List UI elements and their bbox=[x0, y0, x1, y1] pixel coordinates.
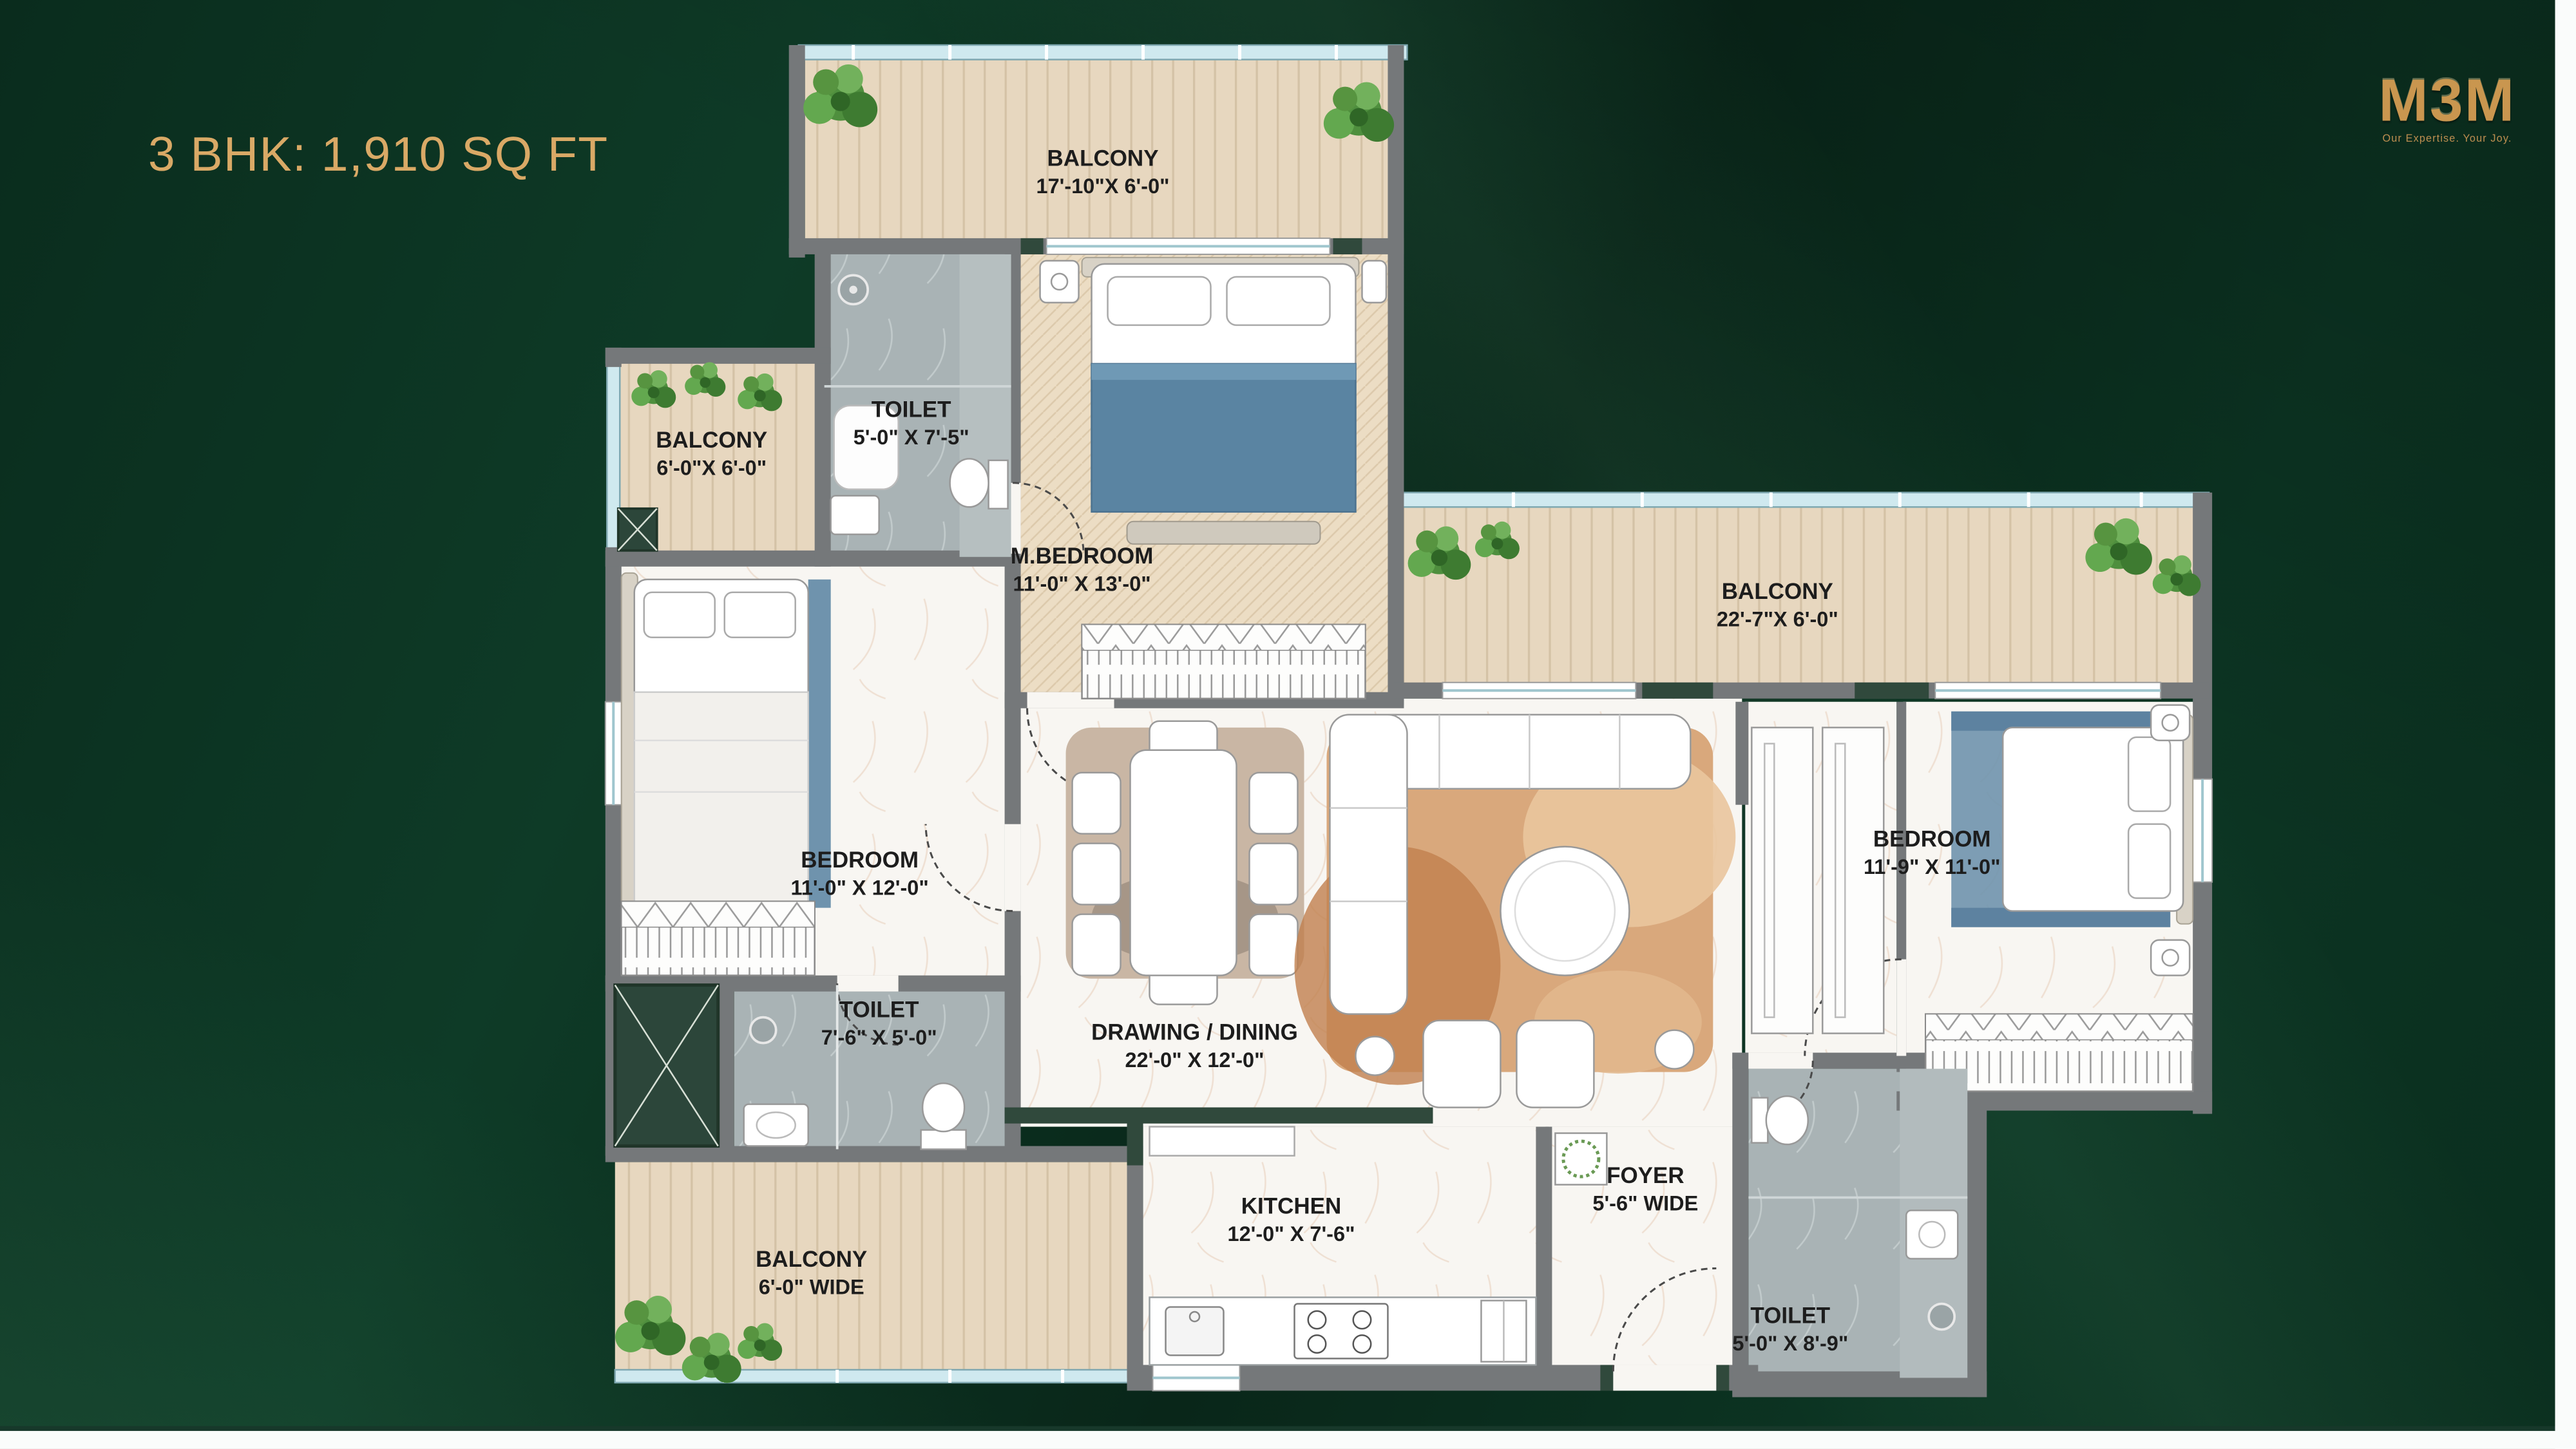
room-label-toilet-master: TOILET 5'-0" X 7'-5" bbox=[854, 396, 969, 451]
room-dim: 7'-6" X 5'-0" bbox=[821, 1025, 937, 1052]
room-dim: 11'-9" X 11'-0" bbox=[1864, 855, 2000, 882]
room-name: BEDROOM bbox=[1864, 826, 2000, 855]
room-label-kitchen: KITCHEN 12'-0" X 7'-6" bbox=[1228, 1193, 1355, 1248]
room-name: TOILET bbox=[1732, 1302, 1848, 1331]
bedroom-left-wardrobe bbox=[622, 902, 815, 976]
room-name: TOILET bbox=[821, 996, 937, 1025]
room-label-toilet-left: TOILET 7'-6" X 5'-0" bbox=[821, 996, 937, 1052]
master-bed bbox=[1040, 258, 1386, 544]
room-name: BEDROOM bbox=[791, 847, 929, 876]
room-dim: 17'-10"X 6'-0" bbox=[1036, 174, 1170, 201]
room-label-drawing-dining: DRAWING / DINING 22'-0" X 12'-0" bbox=[1091, 1019, 1298, 1074]
room-name: TOILET bbox=[854, 396, 969, 425]
room-name: KITCHEN bbox=[1228, 1193, 1355, 1222]
room-dim: 6'-0"X 6'-0" bbox=[656, 455, 767, 482]
sofa-set bbox=[1294, 715, 1735, 1108]
room-dim: 6'-0" WIDE bbox=[756, 1274, 867, 1302]
room-dim: 22'-7"X 6'-0" bbox=[1717, 607, 1838, 634]
window-bedroom-right bbox=[1935, 683, 2161, 699]
room-name: BALCONY bbox=[656, 426, 767, 455]
room-dim: 22'-0" X 12'-0" bbox=[1091, 1048, 1298, 1075]
window-bedroom-left bbox=[606, 702, 622, 805]
room-dim: 5'-6" WIDE bbox=[1592, 1191, 1698, 1218]
room-label-balcony-right: BALCONY 22'-7"X 6'-0" bbox=[1717, 578, 1838, 633]
room-name: BALCONY bbox=[1036, 145, 1170, 174]
window-master-bedroom bbox=[1047, 238, 1330, 254]
room-label-balcony-bottom: BALCONY 6'-0" WIDE bbox=[756, 1246, 867, 1302]
room-label-bedroom-right: BEDROOM 11'-9" X 11'-0" bbox=[1864, 826, 2000, 881]
room-name: BALCONY bbox=[1717, 578, 1838, 607]
right-white-strip bbox=[2555, 0, 2576, 1448]
room-label-bedroom-left: BEDROOM 11'-0" X 12'-0" bbox=[791, 847, 929, 902]
room-name: FOYER bbox=[1592, 1162, 1698, 1191]
bottom-white-strip bbox=[0, 1431, 2576, 1448]
window-drawing bbox=[1442, 683, 1636, 699]
room-dim: 11'-0" X 12'-0" bbox=[791, 875, 929, 902]
room-dim: 5'-0" X 8'-9" bbox=[1732, 1331, 1848, 1358]
room-name: M.BEDROOM bbox=[1011, 542, 1154, 571]
room-dim: 5'-0" X 7'-5" bbox=[854, 425, 969, 452]
master-wardrobe bbox=[1082, 625, 1366, 699]
bottom-divider bbox=[0, 1426, 2576, 1430]
room-label-foyer: FOYER 5'-6" WIDE bbox=[1592, 1162, 1698, 1218]
room-dim: 11'-0" X 13'-0" bbox=[1011, 571, 1154, 598]
room-label-balcony-top: BALCONY 17'-10"X 6'-0" bbox=[1036, 145, 1170, 200]
room-label-master-bedroom: M.BEDROOM 11'-0" X 13'-0" bbox=[1011, 542, 1154, 598]
room-dim: 12'-0" X 7'-6" bbox=[1228, 1222, 1355, 1249]
room-label-balcony-left: BALCONY 6'-0"X 6'-0" bbox=[656, 426, 767, 482]
dining-set bbox=[1066, 721, 1304, 1005]
window-bedroom-right-side bbox=[2193, 779, 2212, 882]
slide: 3 BHK: 1,910 SQ FT M3M Our Expertise. Yo… bbox=[0, 0, 2576, 1448]
room-label-toilet-entry: TOILET 5'-0" X 8'-9" bbox=[1732, 1302, 1848, 1358]
room-name: BALCONY bbox=[756, 1246, 867, 1275]
window-kitchen bbox=[1153, 1365, 1240, 1390]
room-name: DRAWING / DINING bbox=[1091, 1019, 1298, 1048]
